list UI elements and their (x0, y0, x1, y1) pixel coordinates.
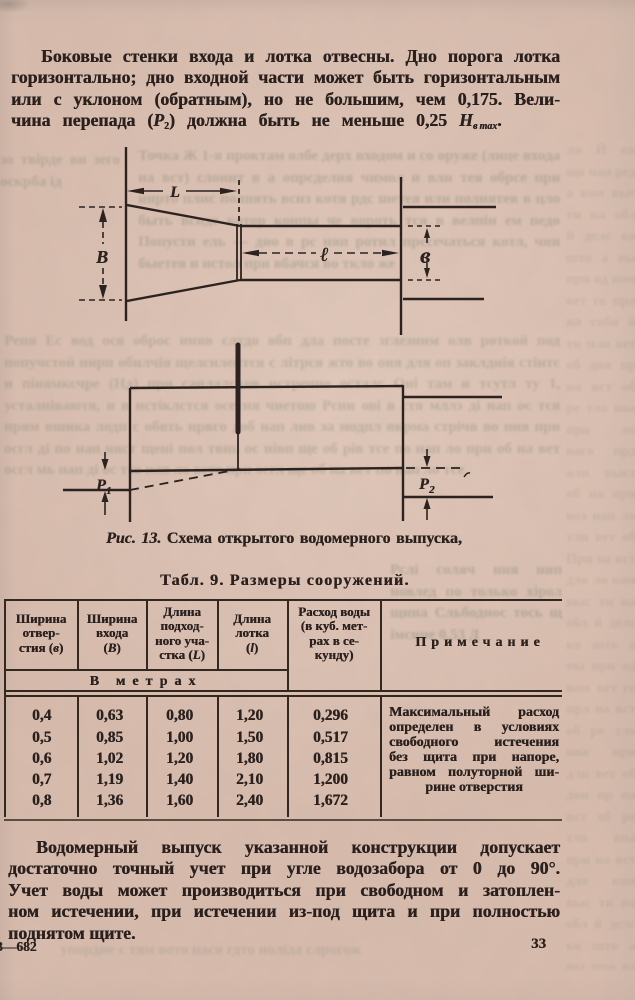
svg-text:P: P (95, 477, 106, 494)
svg-text:P: P (418, 476, 429, 493)
svg-text:L: L (169, 184, 180, 201)
svg-text:1: 1 (106, 485, 112, 497)
svg-text:ℓ: ℓ (320, 244, 329, 266)
svg-text:2: 2 (428, 484, 435, 496)
svg-text:B: B (95, 247, 108, 267)
svg-text:в: в (420, 243, 430, 268)
